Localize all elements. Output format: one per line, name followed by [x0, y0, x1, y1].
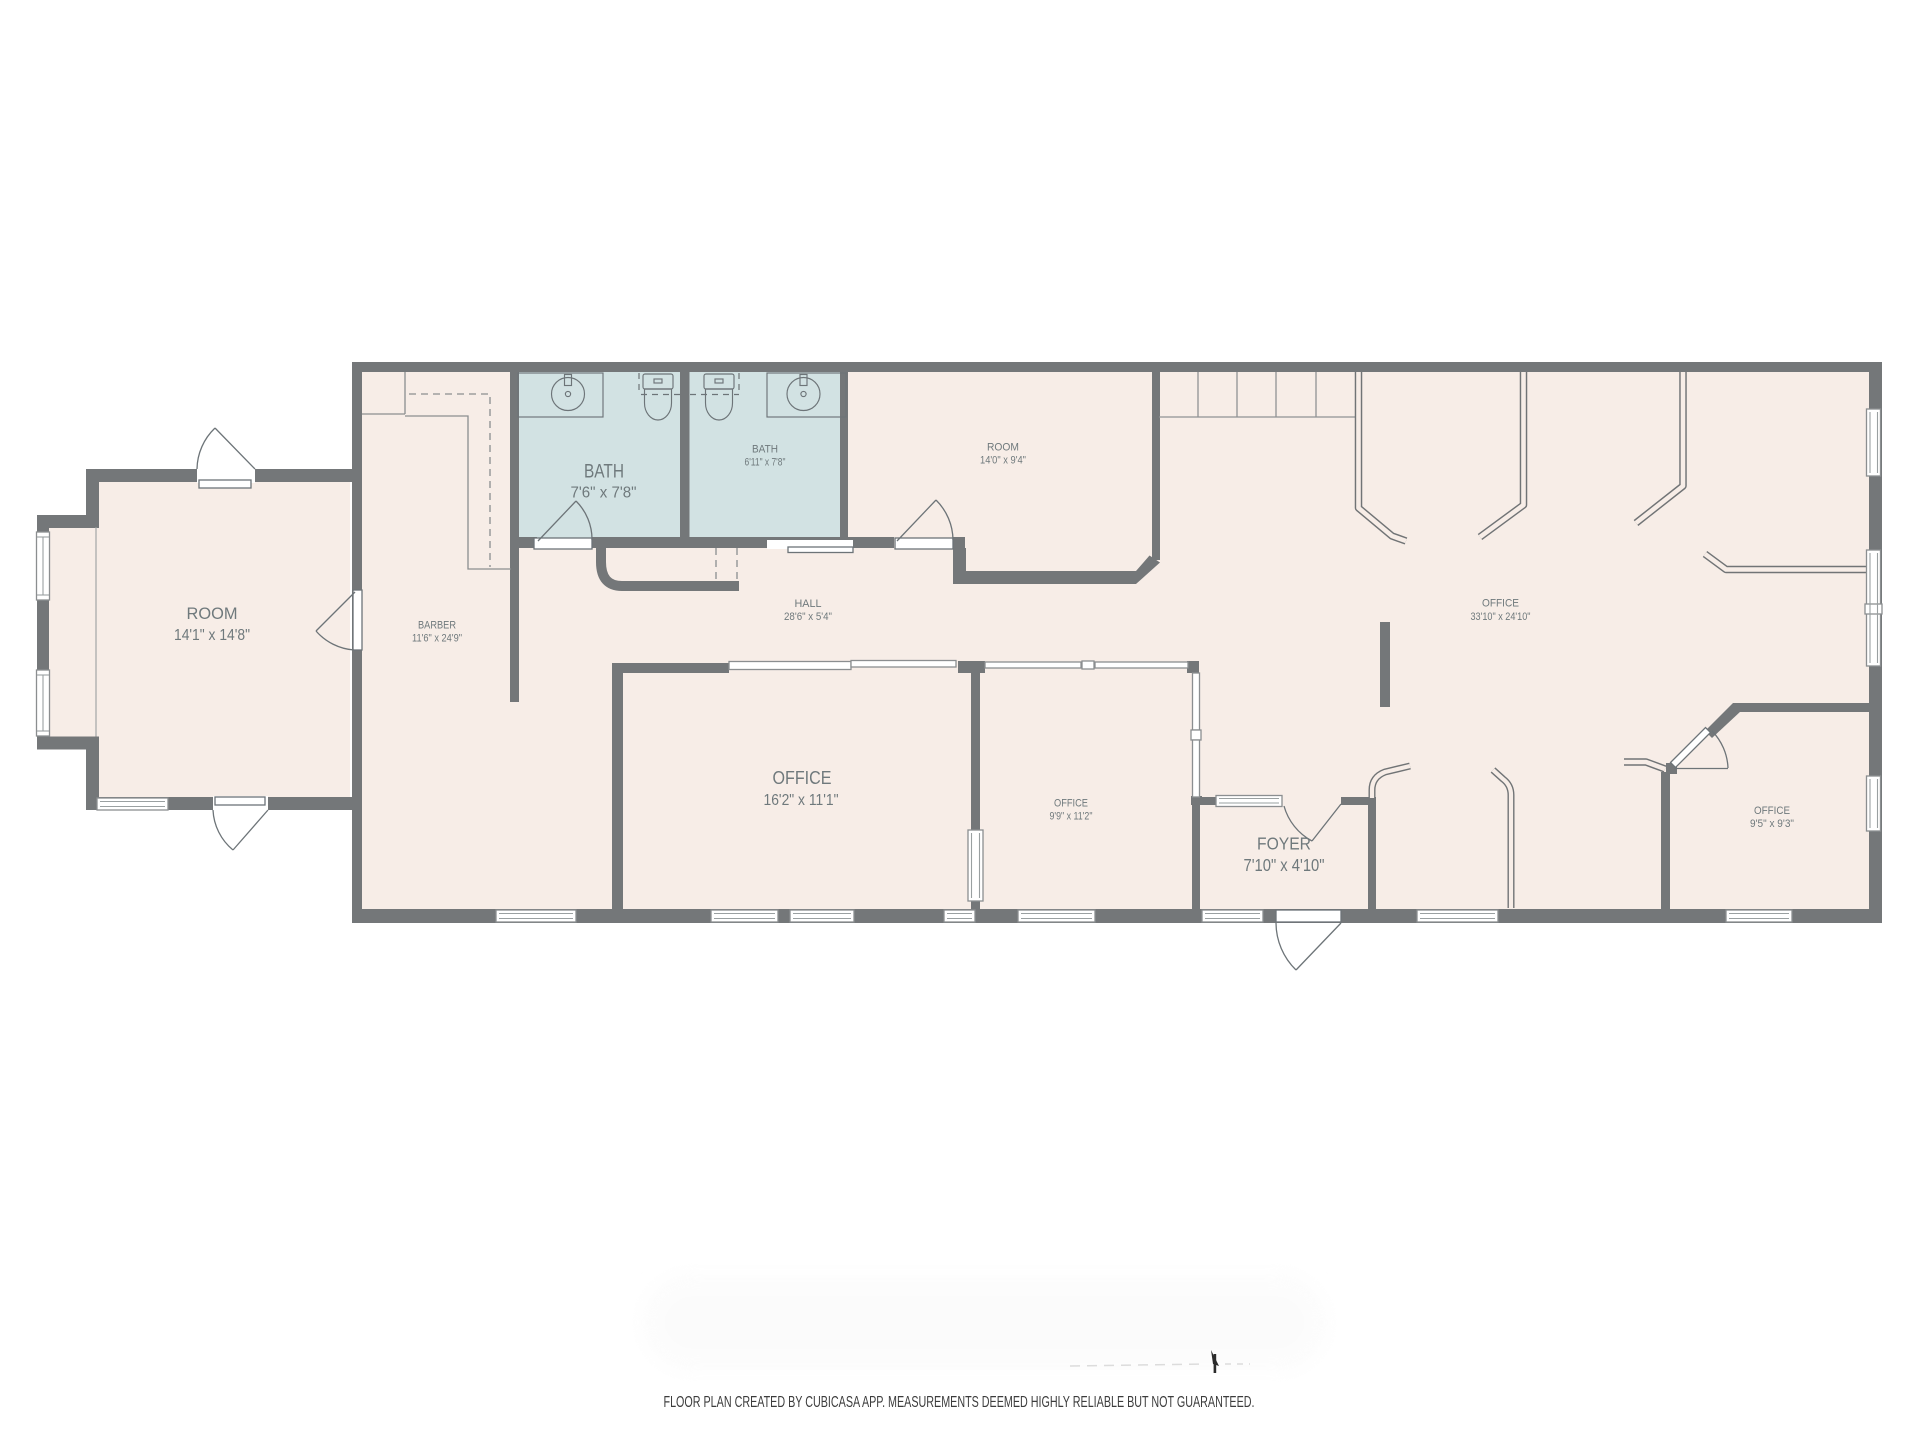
svg-text:7'10" x 4'10": 7'10" x 4'10" [1244, 855, 1325, 875]
svg-text:FOYER: FOYER [1257, 834, 1311, 854]
svg-text:7'6" x 7'8": 7'6" x 7'8" [571, 485, 637, 502]
svg-text:14'1" x 14'8": 14'1" x 14'8" [174, 627, 250, 644]
svg-text:OFFICE: OFFICE [773, 768, 832, 788]
svg-text:OFFICE: OFFICE [1754, 805, 1790, 817]
svg-text:ROOM: ROOM [187, 604, 238, 623]
svg-text:33'10" x 24'10": 33'10" x 24'10" [1471, 611, 1531, 623]
svg-text:OFFICE: OFFICE [1482, 598, 1519, 610]
svg-text:BARBER: BARBER [418, 620, 456, 632]
svg-text:FLOOR PLAN CREATED BY CUBICASA: FLOOR PLAN CREATED BY CUBICASA APP. MEAS… [664, 1394, 1255, 1411]
svg-text:9'5" x 9'3": 9'5" x 9'3" [1750, 818, 1794, 830]
svg-text:ROOM: ROOM [987, 442, 1019, 454]
svg-text:9'9" x 11'2": 9'9" x 11'2" [1050, 811, 1093, 823]
svg-text:11'6" x 24'9": 11'6" x 24'9" [412, 633, 462, 645]
svg-text:28'6" x 5'4": 28'6" x 5'4" [784, 611, 832, 623]
svg-text:6'11" x 7'8": 6'11" x 7'8" [745, 457, 786, 469]
svg-text:16'2" x 11'1": 16'2" x 11'1" [764, 792, 839, 809]
svg-text:BATH: BATH [752, 444, 778, 456]
svg-text:14'0" x 9'4": 14'0" x 9'4" [980, 455, 1026, 467]
svg-text:BATH: BATH [584, 462, 624, 483]
svg-text:HALL: HALL [795, 598, 822, 610]
svg-text:OFFICE: OFFICE [1054, 798, 1088, 810]
